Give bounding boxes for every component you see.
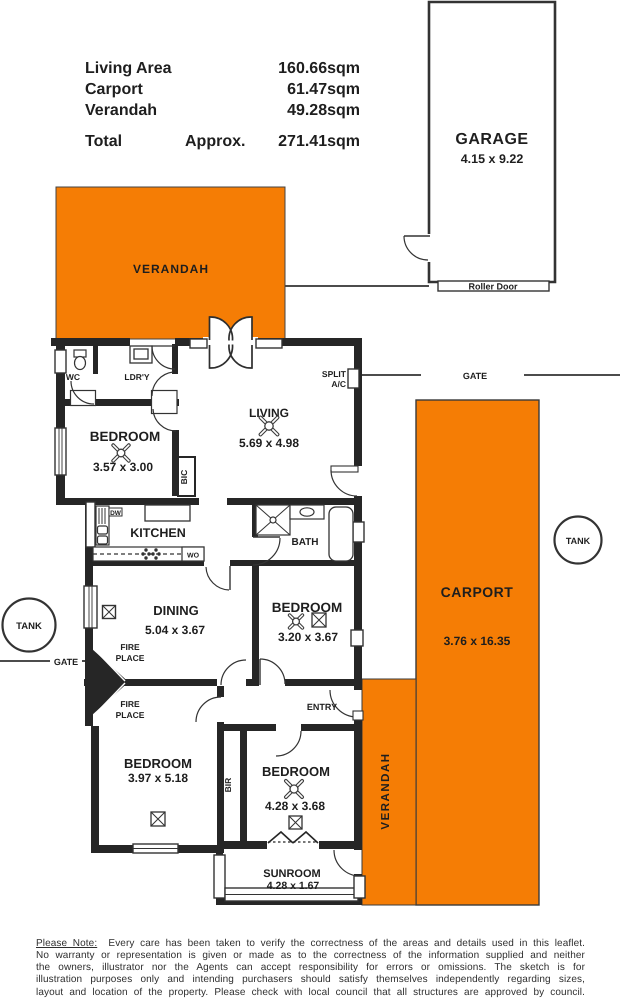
svg-text:BEDROOM: BEDROOM <box>262 764 330 779</box>
svg-text:A/C: A/C <box>331 379 346 389</box>
svg-text:FIRE: FIRE <box>120 642 140 652</box>
svg-text:CARPORT: CARPORT <box>441 584 514 600</box>
svg-text:GATE: GATE <box>54 657 78 667</box>
svg-text:LIVING: LIVING <box>249 406 289 420</box>
svg-text:PLACE: PLACE <box>116 710 145 720</box>
svg-text:SUNROOM: SUNROOM <box>263 868 320 880</box>
svg-text:BIR: BIR <box>223 778 233 793</box>
svg-text:BEDROOM: BEDROOM <box>90 429 161 444</box>
svg-text:Total: Total <box>85 133 122 150</box>
svg-text:Roller Door: Roller Door <box>468 282 518 292</box>
svg-text:4.28 x 3.68: 4.28 x 3.68 <box>265 799 325 813</box>
svg-text:Living Area: Living Area <box>85 60 172 77</box>
svg-text:BEDROOM: BEDROOM <box>124 756 192 771</box>
svg-text:ENTRY: ENTRY <box>307 702 337 712</box>
svg-text:WO: WO <box>187 553 200 560</box>
svg-text:61.47sqm: 61.47sqm <box>287 81 360 98</box>
svg-text:160.66sqm: 160.66sqm <box>278 60 360 77</box>
svg-text:FIRE: FIRE <box>120 699 140 709</box>
svg-text:WC: WC <box>66 372 80 382</box>
svg-text:4.28 x 1.67: 4.28 x 1.67 <box>267 880 320 892</box>
svg-text:49.28sqm: 49.28sqm <box>287 102 360 119</box>
svg-text:LDR'Y: LDR'Y <box>124 372 149 382</box>
svg-text:GARAGE: GARAGE <box>455 131 528 148</box>
svg-text:BATH: BATH <box>291 537 318 548</box>
svg-text:3.20 x 3.67: 3.20 x 3.67 <box>278 630 338 644</box>
svg-text:Carport: Carport <box>85 81 143 98</box>
svg-text:TANK: TANK <box>566 536 591 546</box>
svg-text:BIC: BIC <box>179 470 189 485</box>
svg-text:KITCHEN: KITCHEN <box>130 526 186 540</box>
svg-text:GATE: GATE <box>463 371 487 381</box>
svg-text:Approx.: Approx. <box>185 133 245 150</box>
svg-text:3.97 x 5.18: 3.97 x 5.18 <box>128 771 188 785</box>
svg-text:PLACE: PLACE <box>116 653 145 663</box>
svg-text:SPLIT: SPLIT <box>322 369 347 379</box>
svg-text:4.15 x 9.22: 4.15 x 9.22 <box>461 152 524 166</box>
svg-text:Verandah: Verandah <box>85 102 157 119</box>
svg-text:5.69 x 4.98: 5.69 x 4.98 <box>239 436 299 450</box>
svg-text:3.76 x 16.35: 3.76 x 16.35 <box>444 634 511 648</box>
svg-text:271.41sqm: 271.41sqm <box>278 133 360 150</box>
svg-text:5.04 x 3.67: 5.04 x 3.67 <box>145 623 205 637</box>
svg-text:VERANDAH: VERANDAH <box>133 262 209 276</box>
svg-text:TANK: TANK <box>16 621 42 632</box>
svg-text:VERANDAH: VERANDAH <box>380 752 392 829</box>
svg-text:DINING: DINING <box>153 603 199 618</box>
svg-text:DW: DW <box>110 510 122 517</box>
svg-text:BEDROOM: BEDROOM <box>272 600 343 615</box>
svg-text:3.57 x 3.00: 3.57 x 3.00 <box>93 460 153 474</box>
